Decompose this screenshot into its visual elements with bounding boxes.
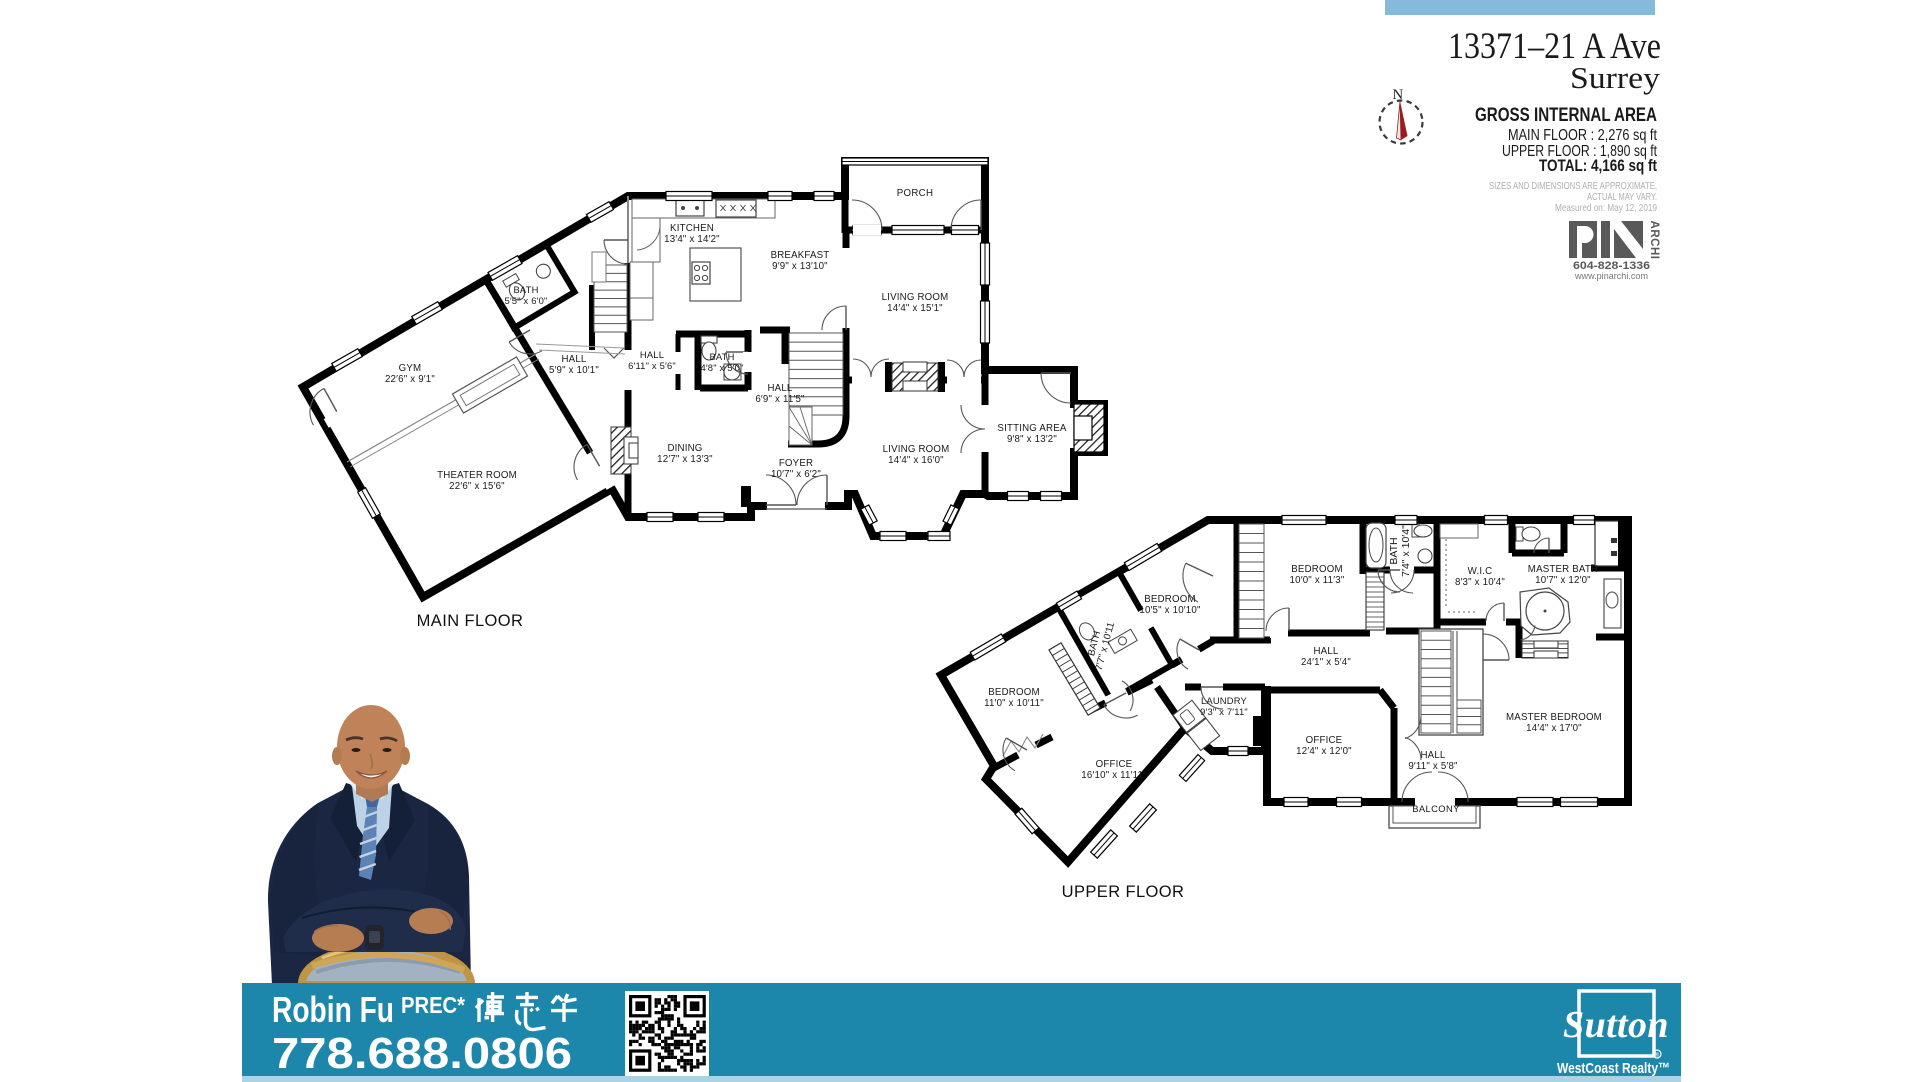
svg-text:TOTAL: 4,166 sq ft: TOTAL: 4,166 sq ft <box>1539 157 1657 175</box>
svg-text:N: N <box>1392 87 1403 103</box>
svg-text:12′4" x 12′0": 12′4" x 12′0" <box>1296 746 1352 757</box>
svg-text:7′4" x 10′4": 7′4" x 10′4" <box>1400 525 1412 577</box>
svg-text:PREC*: PREC* <box>401 992 465 1018</box>
svg-text:BREAKFAST: BREAKFAST <box>771 250 830 261</box>
svg-text:FOYER: FOYER <box>779 458 813 469</box>
svg-text:BALCONY: BALCONY <box>1412 803 1460 814</box>
svg-text:10′5" x 10′10": 10′5" x 10′10" <box>1139 605 1201 616</box>
svg-text:6′11" x 5′6": 6′11" x 5′6" <box>628 360 676 371</box>
svg-text:9′11" x 5′8": 9′11" x 5′8" <box>1408 761 1458 772</box>
svg-text:BEDROOM: BEDROOM <box>1291 564 1342 575</box>
svg-text:Robin Fu: Robin Fu <box>272 989 394 1030</box>
svg-text:13′4" x 14′2": 13′4" x 14′2" <box>664 234 720 245</box>
svg-text:9′3" x 7′11": 9′3" x 7′11" <box>1200 706 1248 717</box>
svg-text:MAIN FLOOR: MAIN FLOOR <box>417 612 524 630</box>
svg-text:9′8" x 13′2": 9′8" x 13′2" <box>1007 434 1057 445</box>
svg-text:8′3" x 10′4": 8′3" x 10′4" <box>1455 577 1505 588</box>
svg-text:DINING: DINING <box>667 443 702 454</box>
svg-text:OFFICE: OFFICE <box>1306 735 1343 746</box>
svg-text:BEDROOM: BEDROOM <box>1144 594 1195 605</box>
svg-text:10′0" x 11′3": 10′0" x 11′3" <box>1290 575 1345 586</box>
svg-text:MASTER BATH: MASTER BATH <box>1528 564 1598 575</box>
svg-text:HALL: HALL <box>1313 646 1338 657</box>
svg-text:ARCHI: ARCHI <box>1648 221 1660 260</box>
svg-text:OFFICE: OFFICE <box>1096 759 1133 770</box>
svg-text:5′9" x 10′1": 5′9" x 10′1" <box>549 365 599 376</box>
svg-text:HALL: HALL <box>561 354 586 365</box>
svg-text:Sutton: Sutton <box>1563 1004 1669 1046</box>
svg-text:BATH: BATH <box>1388 537 1400 564</box>
svg-text:KITCHEN: KITCHEN <box>670 223 714 234</box>
svg-text:LIVING ROOM: LIVING ROOM <box>882 292 949 303</box>
svg-text:778.688.0806: 778.688.0806 <box>272 1029 572 1078</box>
svg-text:Surrey: Surrey <box>1570 60 1661 95</box>
svg-text:5′5" x 6′0": 5′5" x 6′0" <box>504 295 547 306</box>
svg-text:10′7" x 6′2": 10′7" x 6′2" <box>771 469 821 480</box>
svg-text:BEDROOM: BEDROOM <box>988 687 1039 698</box>
svg-text:14′4" x 15′1": 14′4" x 15′1" <box>887 303 943 314</box>
svg-text:22′6" x 9′1": 22′6" x 9′1" <box>385 374 435 385</box>
svg-text:6′9" x 11′5": 6′9" x 11′5" <box>755 394 805 405</box>
svg-text:THEATER ROOM: THEATER ROOM <box>437 470 517 481</box>
svg-text:14′4" x 17′0": 14′4" x 17′0" <box>1526 723 1582 734</box>
svg-text:LAUNDRY: LAUNDRY <box>1201 695 1248 706</box>
svg-text:®: ® <box>1655 1052 1660 1059</box>
svg-text:16′10" x 11′11": 16′10" x 11′11" <box>1081 770 1147 781</box>
svg-text:GYM: GYM <box>399 363 422 374</box>
svg-text:BATH: BATH <box>709 351 734 362</box>
svg-text:MASTER BEDROOM: MASTER BEDROOM <box>1506 712 1602 723</box>
svg-text:14′4" x 16′0": 14′4" x 16′0" <box>888 455 944 466</box>
svg-text:www.pinarchi.com: www.pinarchi.com <box>1574 271 1648 282</box>
svg-text:24′1" x 5′4": 24′1" x 5′4" <box>1301 657 1351 668</box>
svg-text:22′6" x 15′6": 22′6" x 15′6" <box>449 481 505 492</box>
svg-text:BATH: BATH <box>513 284 538 295</box>
svg-text:9′9" x 13′10": 9′9" x 13′10" <box>772 261 828 272</box>
svg-text:PORCH: PORCH <box>897 188 934 199</box>
svg-text:Measured on: May 12, 2019: Measured on: May 12, 2019 <box>1555 202 1657 214</box>
svg-text:10′7" x 12′0": 10′7" x 12′0" <box>1535 575 1591 586</box>
svg-text:LIVING ROOM: LIVING ROOM <box>883 444 950 455</box>
svg-text:HALL: HALL <box>767 383 792 394</box>
svg-text:11′0" x 10′11": 11′0" x 10′11" <box>984 698 1044 709</box>
svg-text:HALL: HALL <box>1420 750 1445 761</box>
svg-text:4′8" x 5′0": 4′8" x 5′0" <box>700 362 743 373</box>
svg-text:UPPER FLOOR: UPPER FLOOR <box>1062 883 1185 901</box>
svg-text:WestCoast Realty™: WestCoast Realty™ <box>1557 1060 1670 1077</box>
svg-text:HALL: HALL <box>640 349 664 360</box>
svg-text:SITTING AREA: SITTING AREA <box>997 423 1066 434</box>
svg-text:12′7" x 13′3": 12′7" x 13′3" <box>657 454 713 465</box>
svg-text:GROSS INTERNAL AREA: GROSS INTERNAL AREA <box>1475 104 1657 126</box>
svg-text:W.I.C: W.I.C <box>1468 566 1493 577</box>
svg-text:MAIN FLOOR : 2,276 sq ft: MAIN FLOOR : 2,276 sq ft <box>1508 127 1657 144</box>
